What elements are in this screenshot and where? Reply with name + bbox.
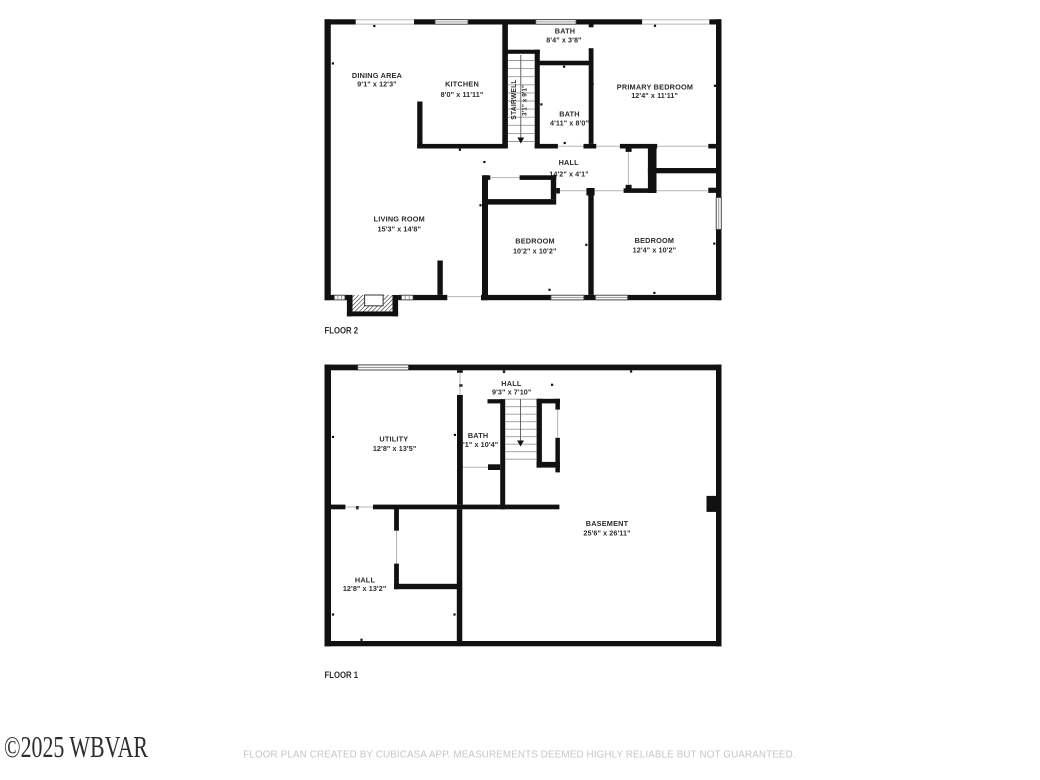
svg-text:25'6" x 26'11": 25'6" x 26'11" xyxy=(583,528,630,537)
svg-text:4'11" x 8'0": 4'11" x 8'0" xyxy=(550,118,589,127)
svg-text:12'4" x 11'11": 12'4" x 11'11" xyxy=(631,91,678,100)
svg-text:FLOOR 1: FLOOR 1 xyxy=(325,669,359,680)
svg-text:8'4" x 3'8": 8'4" x 3'8" xyxy=(546,36,581,45)
svg-text:©2025 WBVAR: ©2025 WBVAR xyxy=(4,729,148,764)
svg-text:FLOOR 2: FLOOR 2 xyxy=(325,325,359,336)
svg-text:KITCHEN: KITCHEN xyxy=(445,79,479,88)
svg-text:12'4" x 10'2": 12'4" x 10'2" xyxy=(633,246,677,255)
svg-text:BEDROOM: BEDROOM xyxy=(635,236,675,245)
svg-text:STAIRWELL: STAIRWELL xyxy=(509,79,518,120)
svg-text:PRIMARY BEDROOM: PRIMARY BEDROOM xyxy=(617,82,693,91)
svg-text:BASEMENT: BASEMENT xyxy=(586,519,629,528)
svg-text:12'8" x 13'2": 12'8" x 13'2" xyxy=(343,584,387,593)
svg-text:LIVING ROOM: LIVING ROOM xyxy=(374,215,425,224)
svg-text:UTILITY: UTILITY xyxy=(379,435,408,444)
svg-text:9'1" x 12'3": 9'1" x 12'3" xyxy=(357,79,396,88)
svg-text:10'2" x 10'2": 10'2" x 10'2" xyxy=(513,247,557,256)
svg-text:3'1" x 9'1": 3'1" x 9'1" xyxy=(521,85,528,116)
svg-text:12'8" x 13'5": 12'8" x 13'5" xyxy=(373,444,417,453)
svg-text:4'1" x 10'4": 4'1" x 10'4" xyxy=(459,440,498,449)
svg-text:8'0" x 11'11": 8'0" x 11'11" xyxy=(441,90,484,99)
svg-text:BATH: BATH xyxy=(555,27,576,36)
svg-text:9'3" x 7'10": 9'3" x 7'10" xyxy=(492,387,531,396)
svg-text:FLOOR PLAN CREATED BY CUBICASA: FLOOR PLAN CREATED BY CUBICASA APP. MEAS… xyxy=(243,750,795,761)
svg-text:BEDROOM: BEDROOM xyxy=(515,237,555,246)
svg-text:15'3" x 14'8": 15'3" x 14'8" xyxy=(378,225,422,234)
svg-text:HALL: HALL xyxy=(559,158,580,167)
